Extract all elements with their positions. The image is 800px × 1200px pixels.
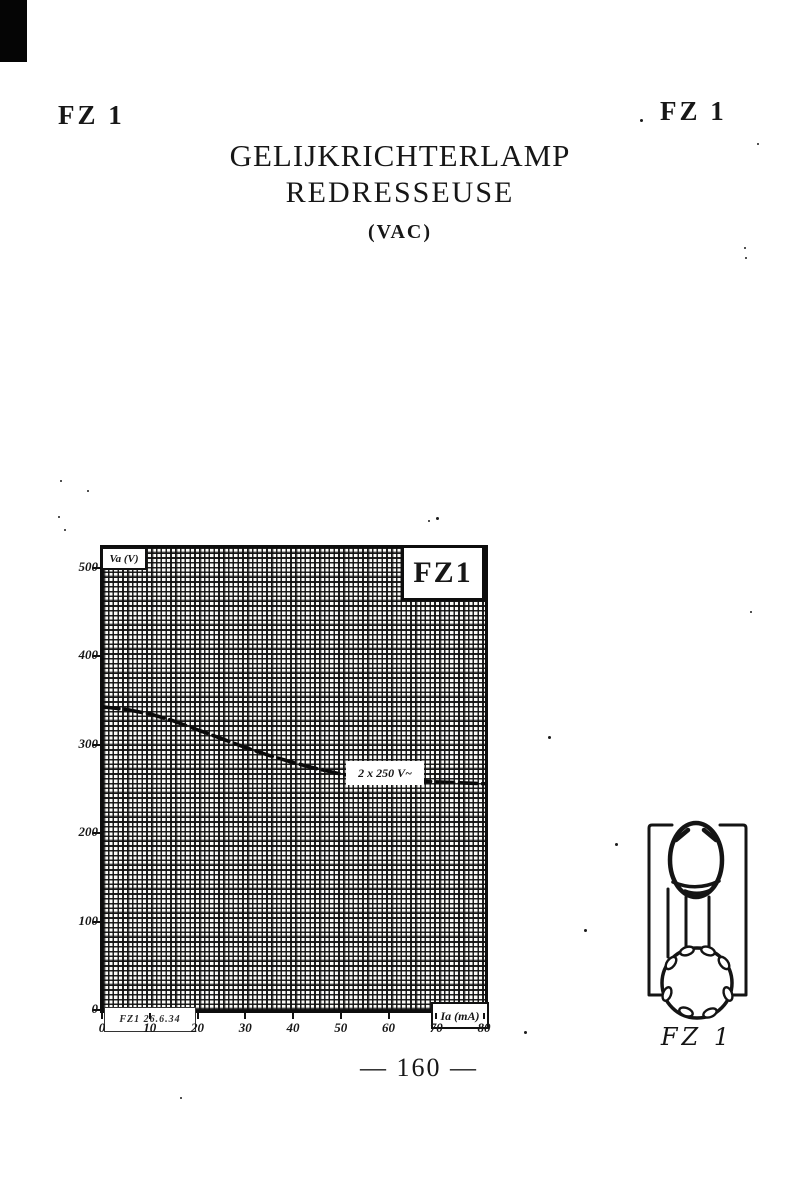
title-block: GELIJKRICHTERLAMP REDRESSEUSE (VAC): [100, 138, 700, 252]
scan-noise-speck: [750, 611, 752, 613]
scan-noise-speck: [58, 516, 60, 518]
x-tick-mark: [101, 1013, 103, 1019]
x-tick-mark: [340, 1013, 342, 1019]
y-tick-label: 400: [58, 647, 98, 663]
x-tick-label: 80: [470, 1020, 498, 1036]
x-tick-label: 20: [184, 1020, 212, 1036]
title-dutch: GELIJKRICHTERLAMP: [100, 138, 700, 174]
chart-plot-area: [100, 545, 488, 1013]
x-tick-label: 40: [279, 1020, 307, 1036]
scan-noise-speck: [745, 257, 747, 259]
curve-annotation: 2 x 250 V~: [346, 761, 424, 785]
x-tick-label: 60: [375, 1020, 403, 1036]
scan-noise-speck: [60, 480, 62, 482]
scan-noise-speck: [87, 490, 89, 492]
x-tick-mark: [292, 1013, 294, 1019]
type-badge-right: FZ 1: [660, 96, 727, 127]
chart-title-box: FZ1: [401, 545, 485, 601]
load-curve: [103, 707, 484, 784]
scan-noise-speck: [548, 736, 551, 739]
y-axis-label-box: Va (V): [101, 547, 147, 570]
title-french: REDRESSEUSE: [100, 174, 700, 212]
scan-noise-speck: [744, 247, 746, 249]
type-badge-left: FZ 1: [58, 100, 125, 131]
x-tick-mark: [435, 1013, 437, 1019]
y-tick-mark: [93, 1009, 100, 1011]
x-tick-label: 50: [327, 1020, 355, 1036]
x-tick-label: 10: [136, 1020, 164, 1036]
chart-canvas: [103, 548, 485, 1010]
x-tick-mark: [388, 1013, 390, 1019]
x-tick-mark: [244, 1013, 246, 1019]
scan-noise-speck: [428, 520, 430, 522]
y-tick-mark: [93, 921, 100, 923]
y-tick-label: 100: [58, 913, 98, 929]
y-tick-mark: [93, 567, 100, 569]
y-tick-label: 300: [58, 736, 98, 752]
y-tick-mark: [93, 744, 100, 746]
x-tick-mark: [483, 1013, 485, 1019]
x-tick-label: 0: [88, 1020, 116, 1036]
pinout-caption: FZ 1: [660, 1023, 733, 1051]
scan-noise-speck: [180, 1097, 182, 1099]
y-tick-label: 200: [58, 824, 98, 840]
y-tick-label: 500: [58, 559, 98, 575]
scan-noise-speck: [524, 1031, 527, 1034]
x-tick-label: 30: [231, 1020, 259, 1036]
scan-noise-speck: [584, 929, 587, 932]
scan-edge-artifact: [0, 0, 27, 62]
y-tick-label: 0: [58, 1001, 98, 1017]
y-tick-mark: [93, 655, 100, 657]
datasheet-page: FZ 1 FZ 1 GELIJKRICHTERLAMP REDRESSEUSE …: [0, 0, 800, 1200]
scan-noise-speck: [615, 843, 618, 846]
scan-noise-speck: [436, 517, 439, 520]
x-tick-mark: [149, 1013, 151, 1019]
scan-noise-speck: [640, 119, 643, 122]
page-number: — 160 —: [319, 1053, 519, 1083]
y-tick-mark: [93, 832, 100, 834]
x-tick-mark: [197, 1013, 199, 1019]
scan-noise-speck: [757, 143, 759, 145]
tube-pinout-diagram: FZ 1: [610, 790, 800, 1070]
x-tick-label: 70: [422, 1020, 450, 1036]
title-brand: (VAC): [100, 212, 700, 252]
scan-noise-speck: [64, 529, 66, 531]
